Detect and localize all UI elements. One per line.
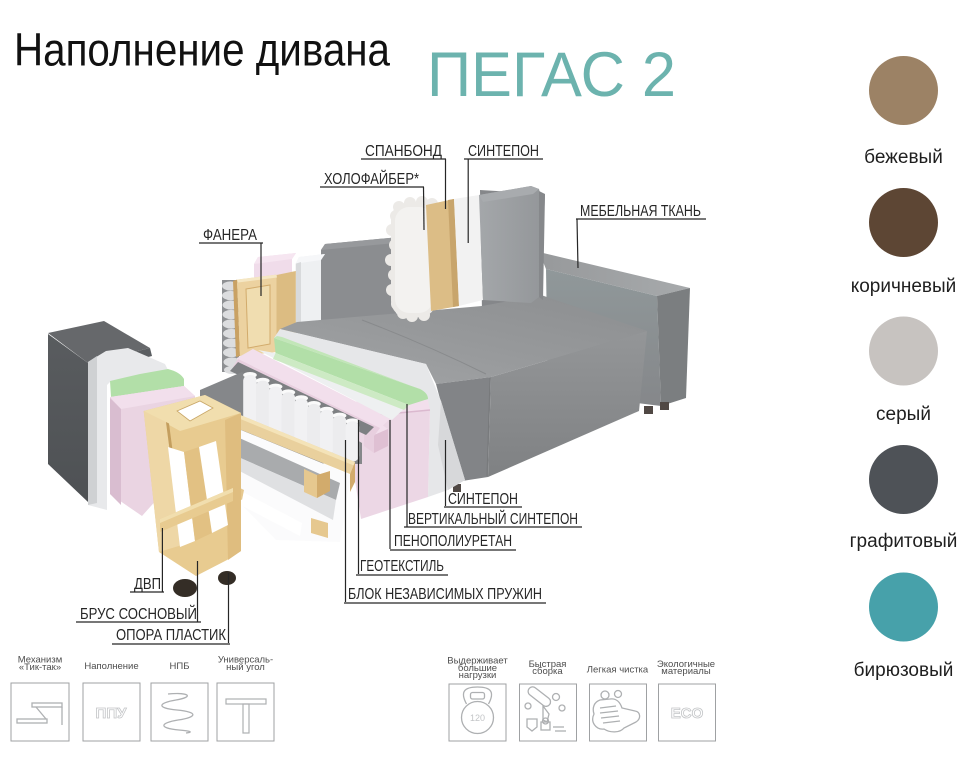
- svg-text:ХОЛОФАЙБЕР*: ХОЛОФАЙБЕР*: [324, 170, 419, 188]
- svg-text:бежевый: бежевый: [864, 147, 943, 168]
- svg-text:ППУ: ППУ: [96, 705, 128, 722]
- svg-text:графитовый: графитовый: [850, 531, 958, 552]
- svg-text:МЕБЕЛЬНАЯ ТКАНЬ: МЕБЕЛЬНАЯ ТКАНЬ: [580, 203, 701, 220]
- svg-text:СИНТЕПОН: СИНТЕПОН: [448, 491, 518, 508]
- svg-text:ный угол: ный угол: [226, 662, 265, 673]
- svg-text:сборка: сборка: [532, 666, 563, 677]
- svg-text:СИНТЕПОН: СИНТЕПОН: [468, 143, 539, 160]
- svg-text:Легкая чистка: Легкая чистка: [587, 665, 649, 676]
- svg-text:Наполнение: Наполнение: [84, 661, 138, 672]
- svg-text:Наполнение дивана: Наполнение дивана: [14, 24, 390, 76]
- svg-text:ECO: ECO: [671, 705, 704, 722]
- svg-text:СПАНБОНД: СПАНБОНД: [365, 143, 442, 160]
- svg-text:120: 120: [470, 713, 485, 723]
- svg-text:ПЕГАС 2: ПЕГАС 2: [427, 40, 676, 110]
- svg-text:нагрузки: нагрузки: [459, 670, 497, 681]
- svg-text:БЛОК НЕЗАВИСИМЫХ ПРУЖИН: БЛОК НЕЗАВИСИМЫХ ПРУЖИН: [348, 586, 542, 603]
- svg-text:НПБ: НПБ: [170, 661, 190, 672]
- svg-text:серый: серый: [876, 404, 931, 425]
- svg-text:бирюзовый: бирюзовый: [854, 660, 954, 681]
- svg-text:материалы: материалы: [661, 666, 711, 677]
- svg-text:ВЕРТИКАЛЬНЫЙ СИНТЕПОН: ВЕРТИКАЛЬНЫЙ СИНТЕПОН: [408, 510, 578, 528]
- svg-text:ПЕНОПОЛИУРЕТАН: ПЕНОПОЛИУРЕТАН: [394, 533, 512, 550]
- svg-text:ДВП: ДВП: [134, 576, 161, 593]
- svg-text:ГЕОТЕКСТИЛЬ: ГЕОТЕКСТИЛЬ: [360, 558, 444, 575]
- svg-text:коричневый: коричневый: [851, 276, 957, 297]
- svg-text:БРУС СОСНОВЫЙ: БРУС СОСНОВЫЙ: [80, 605, 197, 623]
- svg-text:ФАНЕРА: ФАНЕРА: [203, 227, 258, 244]
- svg-text:«Тик-так»: «Тик-так»: [19, 662, 61, 673]
- svg-text:ОПОРА ПЛАСТИК: ОПОРА ПЛАСТИК: [116, 627, 226, 644]
